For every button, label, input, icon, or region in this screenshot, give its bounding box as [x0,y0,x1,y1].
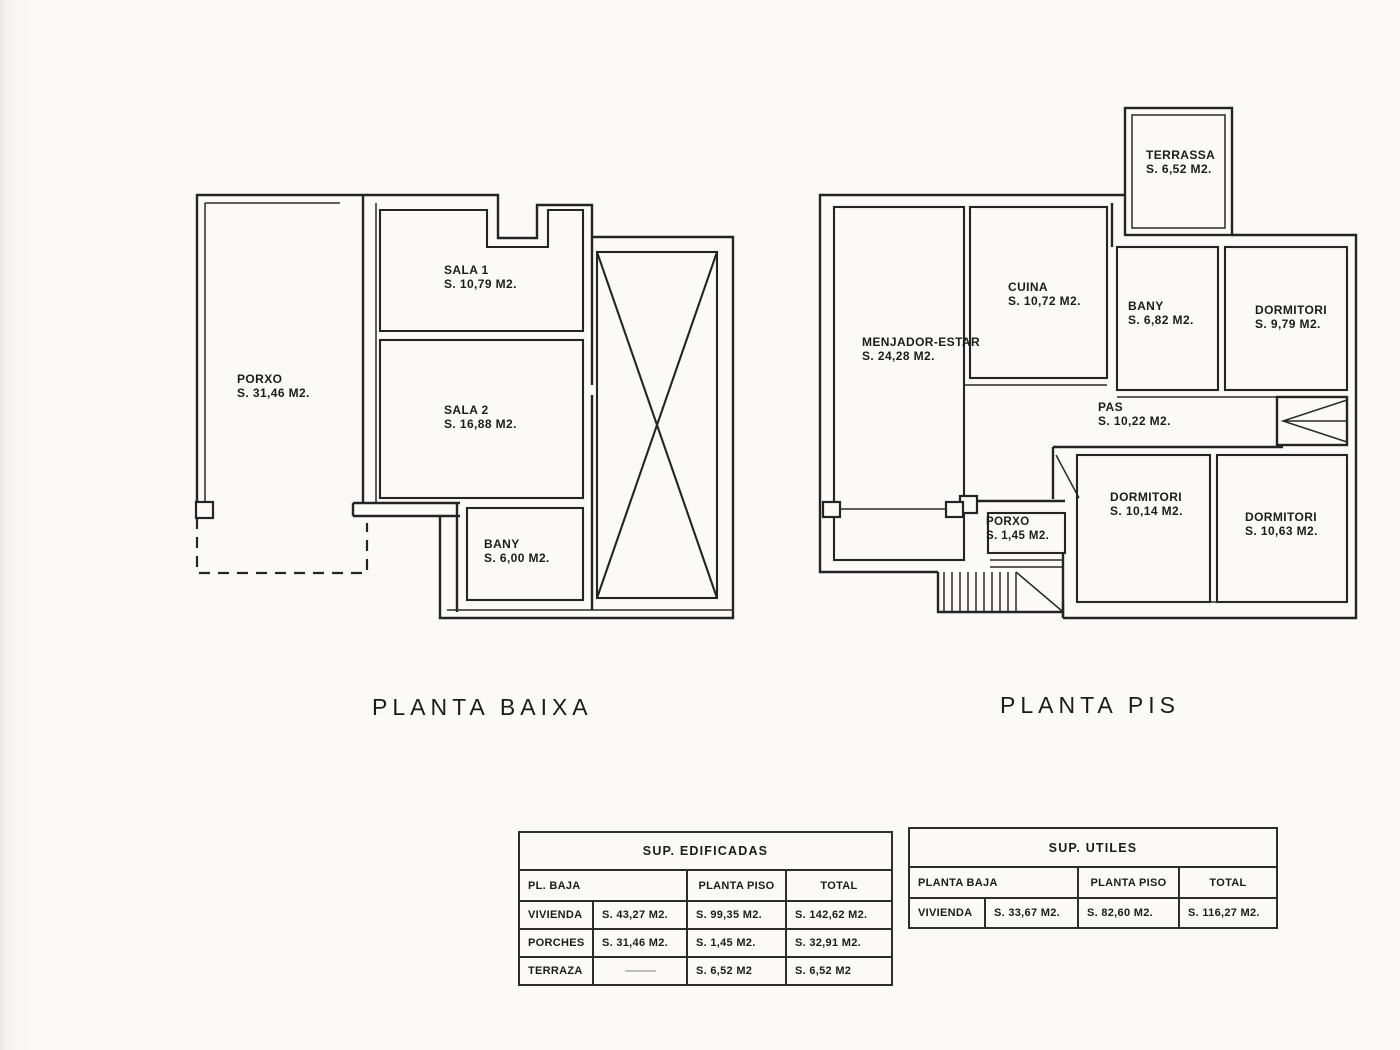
label-dormitori2: DORMITORIS. 10,14 M2. [1110,491,1183,518]
cell: S. 99,35 M2. [687,901,786,929]
porch-pillar [196,502,213,518]
row-label: VIVIENDA [909,898,985,928]
table-row: PORCHES S. 31,46 M2. S. 1,45 M2. S. 32,9… [519,929,892,957]
row-label: VIVIENDA [519,901,593,929]
col-header: PLANTA BAJA [909,867,1078,898]
room-menjador [834,207,964,560]
table-sup-edificadas: SUP. EDIFICADAS PL. BAJA PLANTA PISO TOT… [518,831,893,986]
table-sup-utiles: SUP. UTILES PLANTA BAJA PLANTA PISO TOTA… [908,827,1278,929]
table-row: VIVIENDA S. 33,67 M2. S. 82,60 M2. S. 11… [909,898,1277,928]
cell: S. 116,27 M2. [1179,898,1277,928]
floor-plan-sheet: PORXOS. 31,46 M2. SALA 1S. 10,79 M2. SAL… [0,0,1400,1050]
stair-treads [944,572,1016,612]
cell: S. 6,52 M2 [687,957,786,985]
cell: S. 1,45 M2. [687,929,786,957]
cell: S. 43,27 M2. [593,901,687,929]
cell: S. 31,46 M2. [593,929,687,957]
crossed-bay-diagonals [597,252,717,598]
label-pas: PASS. 10,22 M2. [1098,401,1171,428]
table-title: SUP. EDIFICADAS [519,832,892,870]
door-swing [1056,455,1079,498]
cell: S. 6,52 M2 [786,957,892,985]
planta-pis-linework [820,108,1356,618]
label-terrassa: TERRASSAS. 6,52 M2. [1146,149,1215,176]
cell: S. 142,62 M2. [786,901,892,929]
title-planta-baixa: PLANTA BAIXA [372,694,593,721]
cell: S. 32,91 M2. [786,929,892,957]
porch-dashed-edge [197,518,367,573]
title-planta-pis: PLANTA PIS [1000,692,1180,719]
table-row: VIVIENDA S. 43,27 M2. S. 99,35 M2. S. 14… [519,901,892,929]
cell: ——— [593,957,687,985]
label-bany-pb: BANYS. 6,00 M2. [484,538,550,565]
col-header: PLANTA PISO [687,870,786,901]
label-dormitori1: DORMITORIS. 9,79 M2. [1255,304,1327,331]
label-sala2: SALA 2S. 16,88 M2. [444,404,517,431]
row-label: PORCHES [519,929,593,957]
stair-symbol-chevron [1283,400,1347,442]
wall-pilaster [946,502,963,517]
row-label: TERRAZA [519,957,593,985]
label-bany-pis: BANYS. 6,82 M2. [1128,300,1194,327]
cell: S. 33,67 M2. [985,898,1078,928]
label-porxo-pb: PORXOS. 31,46 M2. [237,373,310,400]
label-cuina: CUINAS. 10,72 M2. [1008,281,1081,308]
room-dormitori2 [1077,455,1210,602]
col-header: PL. BAJA [519,870,687,901]
col-header: TOTAL [786,870,892,901]
label-menjador: MENJADOR-ESTARS. 24,28 M2. [862,336,980,363]
table-row: TERRAZA ——— S. 6,52 M2 S. 6,52 M2 [519,957,892,985]
cell: S. 82,60 M2. [1078,898,1179,928]
label-sala1: SALA 1S. 10,79 M2. [444,264,517,291]
col-header: PLANTA PISO [1078,867,1179,898]
table-title: SUP. UTILES [909,828,1277,867]
wall-pilaster [823,502,840,517]
label-dormitori3: DORMITORIS. 10,63 M2. [1245,511,1318,538]
label-porxo-pis: PORXOS. 1,45 M2. [986,516,1049,543]
col-header: TOTAL [1179,867,1277,898]
